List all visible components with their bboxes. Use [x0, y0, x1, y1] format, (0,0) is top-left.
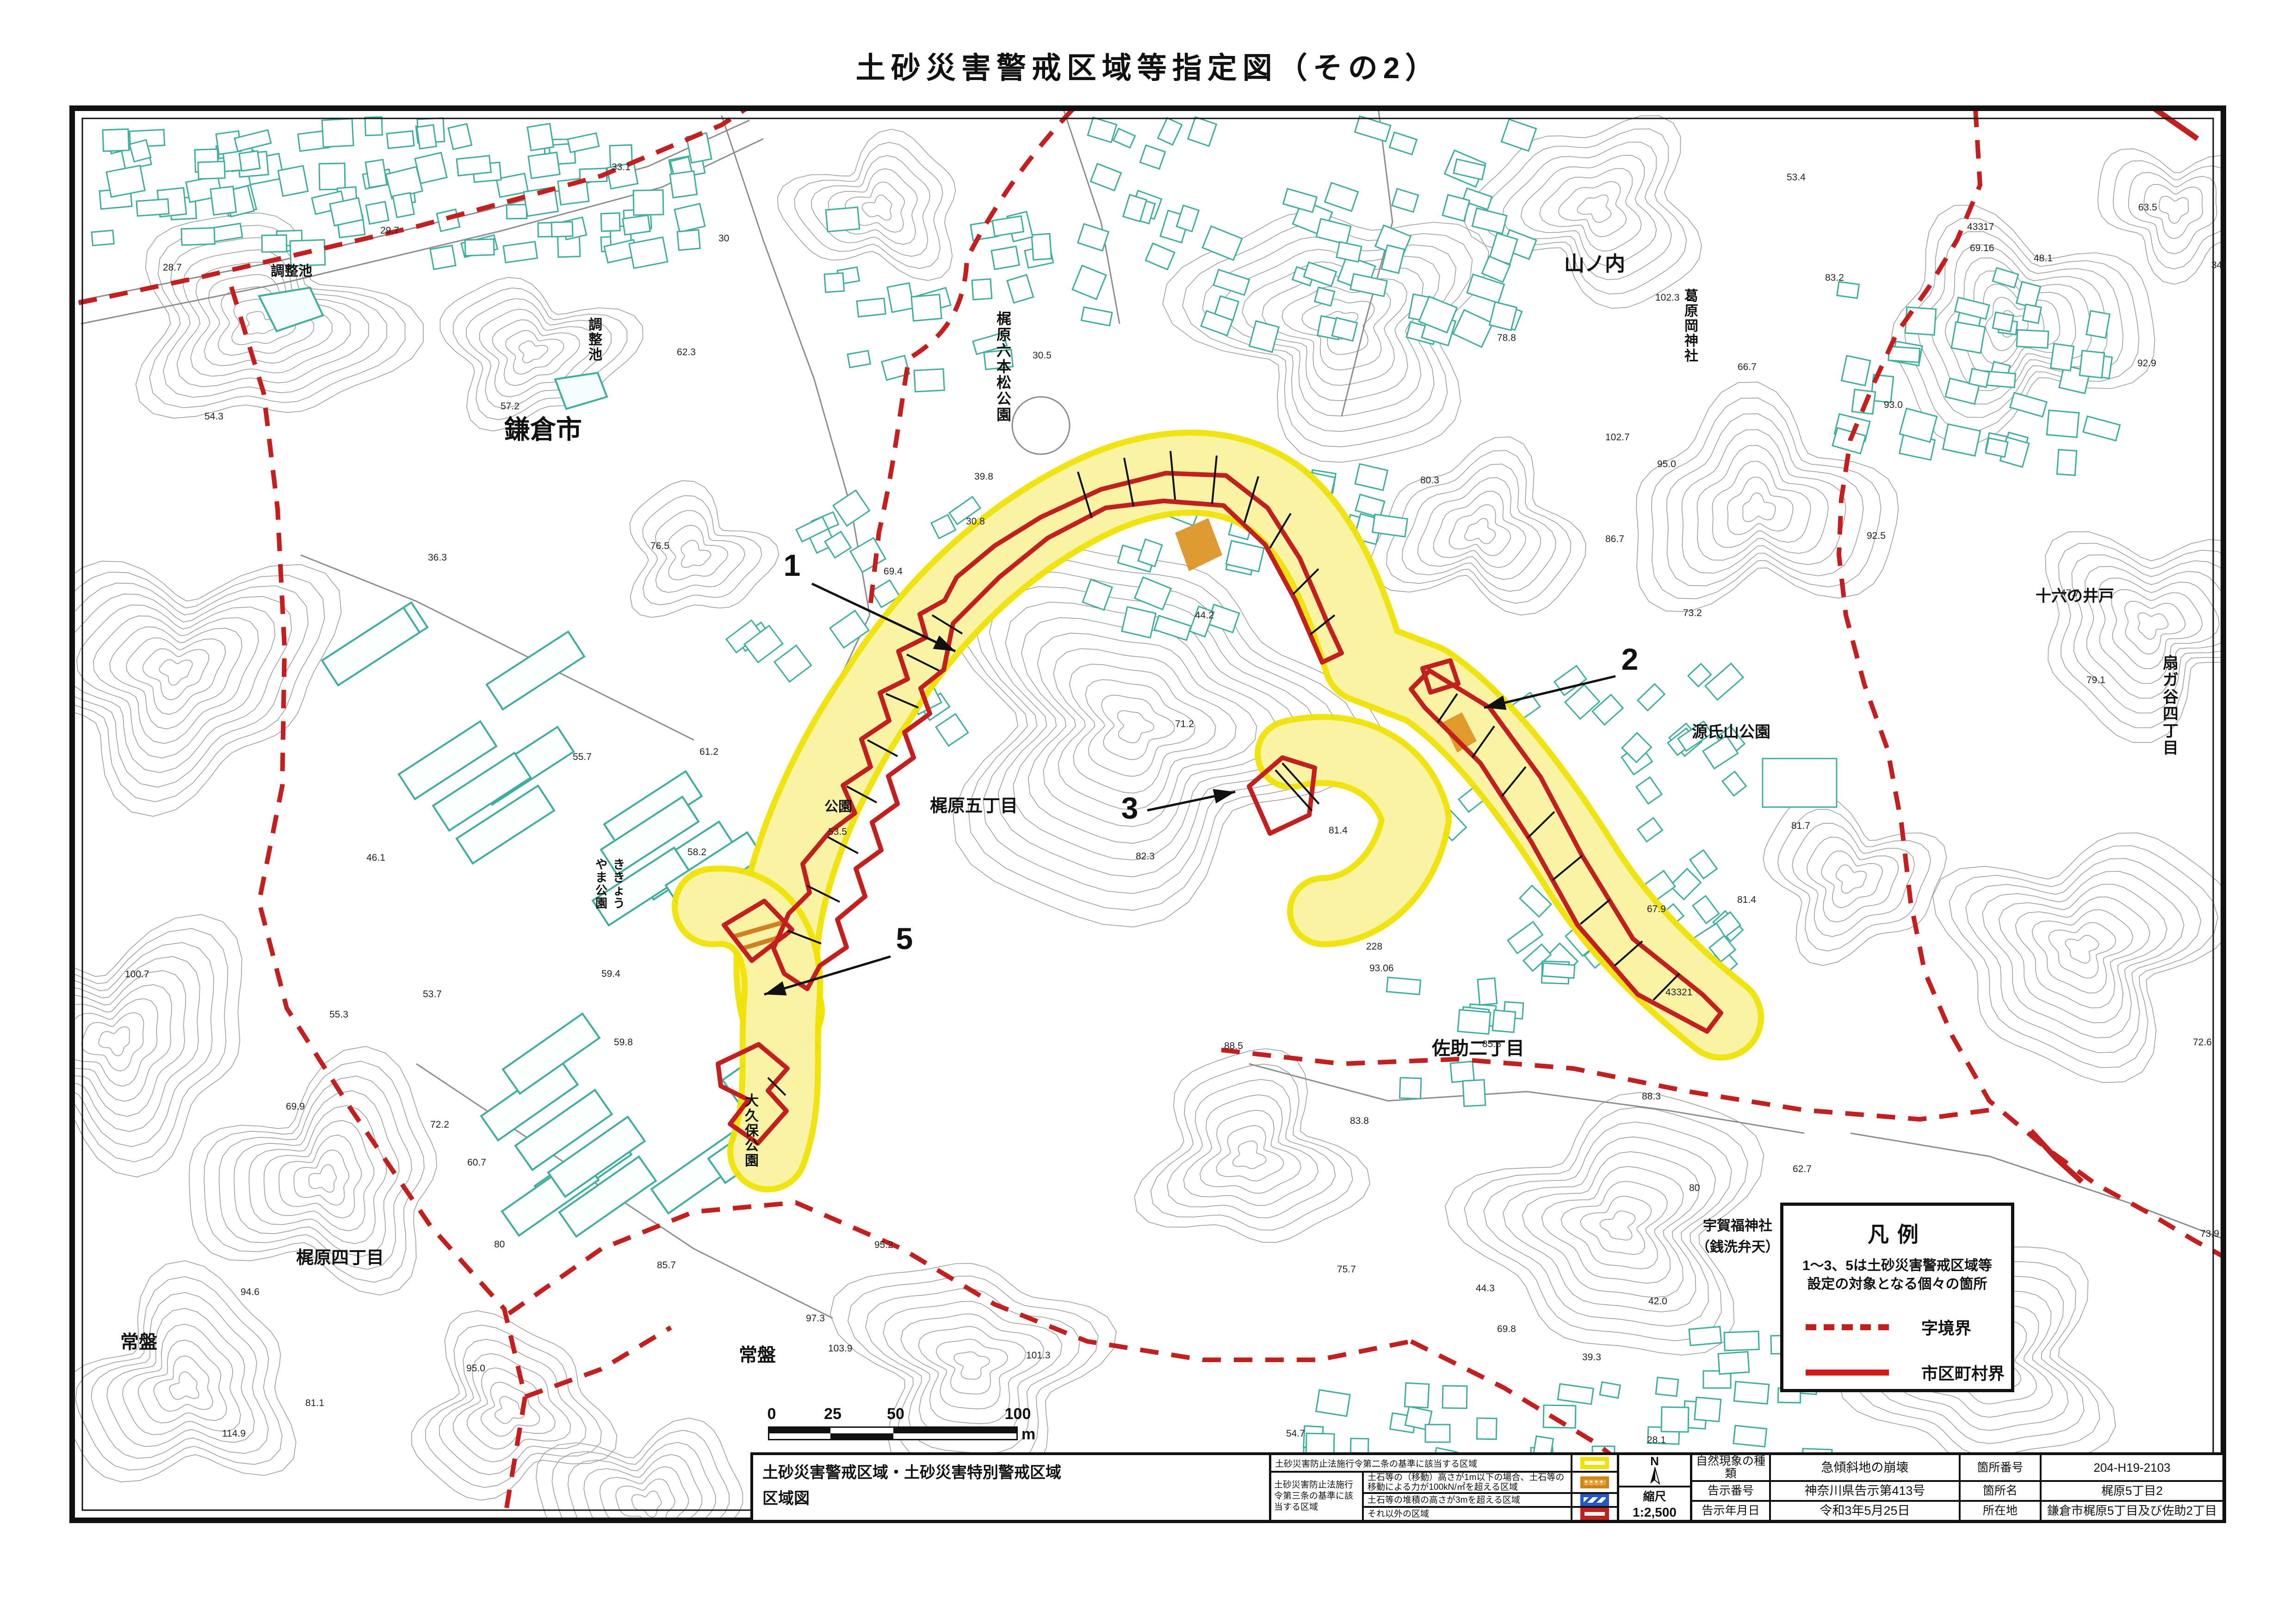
criteria-row-deposit-height: 土石等の堆積の高さが3mを超える区域: [1364, 1494, 1617, 1508]
elevation-label: 72.6: [2193, 1037, 2212, 1048]
place-label: 岡: [1684, 319, 1698, 334]
place-label: 扇: [2163, 654, 2178, 672]
elevation-label: 85.8: [1482, 1039, 1501, 1049]
elevation-label: 69.9: [286, 1101, 305, 1112]
orange-dotted-zone-swatch-icon: [1580, 1476, 1609, 1488]
place-label: 原: [1684, 303, 1698, 319]
place-label: や: [595, 858, 607, 871]
place-label: 源氏山公園: [1692, 723, 1770, 741]
place-label: 松: [996, 374, 1011, 391]
elevation-label: 30.5: [1033, 350, 1052, 361]
elevation-label: 95.0: [466, 1363, 485, 1374]
elevation-label: 36.3: [428, 552, 447, 563]
elevation-label: 228: [1366, 941, 1382, 952]
place-label: 公: [595, 883, 607, 897]
attr-value: 神奈川県告示第413号: [1771, 1482, 1961, 1500]
place-label: 四: [2163, 705, 2178, 723]
elevation-label: 54.3: [204, 411, 223, 422]
place-label: 園: [996, 406, 1011, 423]
attr-value: 急傾斜地の崩壊: [1771, 1455, 1961, 1480]
elevation-label: 100.7: [125, 969, 149, 980]
legend-item-aza-boundary: 字境界: [1806, 1315, 2011, 1339]
scale-tick-0: 0: [767, 1405, 776, 1423]
elevation-label: 76.5: [650, 541, 669, 551]
elevation-label: 47.7: [2061, 588, 2079, 599]
legend-item-label: 字境界: [1921, 1315, 1971, 1339]
red-outline-zone-swatch-icon: [1580, 1508, 1609, 1520]
elevation-label: 53.5: [828, 827, 847, 837]
yellow-zone-swatch-icon: [1580, 1457, 1609, 1469]
criteria-label: それ以外の区域: [1364, 1508, 1571, 1520]
elevation-label: 71.2: [1175, 719, 1194, 729]
attr-label: 箇所番号: [1961, 1455, 2042, 1480]
elevation-label: 79.1: [2086, 675, 2105, 685]
elevation-label: 95.0: [1657, 459, 1676, 469]
red-dashed-line-icon: [1806, 1324, 1889, 1330]
elevation-label: 101.3: [1026, 1350, 1051, 1361]
attributes-section: 自然現象の種類 急傾斜地の崩壊 箇所番号 204-H19-2103 告示番号 神…: [1692, 1455, 2222, 1520]
place-label: 池: [588, 347, 602, 363]
criteria-group-label: 土砂災害防止法施行令第三条の基準に該当する区域: [1271, 1473, 1364, 1520]
elevation-label: 28.1: [1647, 1435, 1666, 1445]
elevation-label: 85.7: [657, 1260, 676, 1271]
place-label: 鎌倉市: [504, 415, 582, 444]
elevation-label: 93.06: [1369, 963, 1394, 974]
elevation-label: 43317: [1967, 222, 1994, 232]
elevation-label: 59.4: [601, 969, 620, 979]
scale-cell: 縮尺 1:2,500: [1619, 1487, 1690, 1520]
place-label: 本: [996, 358, 1011, 375]
place-label: ガ: [2163, 672, 2178, 689]
elevation-label: 58.2: [687, 847, 706, 858]
elevation-label: 103.9: [828, 1343, 853, 1354]
elevation-label: 59.8: [614, 1037, 633, 1048]
elevation-label: 83.2: [1825, 272, 1844, 283]
scale-word: 縮尺: [1643, 1487, 1666, 1504]
place-label: 園: [595, 896, 607, 910]
elevation-label: 69.8: [1497, 1324, 1516, 1334]
criteria-section: 土砂災害防止法施行令第二条の基準に該当する区域 土砂災害防止法施行令第三条の基準…: [1271, 1455, 1619, 1520]
elevation-label: 66.7: [1738, 362, 1757, 372]
elevation-label: 81.4: [1737, 895, 1756, 905]
elevation-label: 29.7: [380, 225, 399, 236]
compass-cell: N: [1619, 1455, 1690, 1487]
place-label: 公園: [824, 799, 852, 815]
map-sheet-title-line2: 区域図: [762, 1486, 1260, 1512]
place-label: ま: [595, 870, 607, 884]
elevation-label: 42.0: [1648, 1296, 1667, 1307]
scale-bar-graphic: [768, 1426, 1018, 1440]
place-label: 梶原五丁目: [930, 796, 1018, 816]
place-label: 保: [745, 1123, 759, 1139]
elevation-label: 54.7: [1286, 1428, 1305, 1439]
place-label: 宇賀福神社: [1703, 1218, 1772, 1234]
elevation-label: 102.7: [1605, 432, 1630, 443]
elevation-label: 95.2: [874, 1240, 893, 1250]
elevation-label: 81.7: [1791, 821, 1810, 831]
elevation-label: 80: [494, 1239, 505, 1250]
elevation-label: 83.8: [1350, 1116, 1369, 1126]
elevation-label: 69.4: [884, 566, 903, 577]
place-label: 丁: [2163, 722, 2178, 740]
elevation-label: 63.5: [2138, 202, 2157, 213]
place-label: 原: [996, 327, 1011, 343]
attr-label: 告示年月日: [1692, 1502, 1771, 1520]
place-label: 調整池: [271, 264, 312, 279]
scale-tick-25: 25: [824, 1405, 842, 1423]
scale-value: 1:2,500: [1633, 1505, 1677, 1520]
swatch-cell: [1571, 1473, 1617, 1492]
place-label: き: [613, 858, 625, 871]
place-label: 山ノ内: [1564, 253, 1625, 275]
legend-note-line1: 1～3、5は土砂災害警戒区域等: [1783, 1257, 2011, 1275]
elevation-label: 48.1: [2034, 253, 2053, 264]
elevation-label: 88.3: [1642, 1091, 1661, 1102]
elevation-label: 78.8: [1497, 333, 1516, 343]
elevation-label: 102.3: [1655, 292, 1680, 303]
elevation-label: 44.3: [1476, 1283, 1495, 1294]
elevation-label: 62.3: [677, 347, 696, 358]
elevation-label: 39.8: [974, 471, 993, 482]
place-label: 大: [745, 1093, 759, 1109]
legend-note-line2: 設定の対象となる個々の箇所: [1783, 1275, 2011, 1294]
elevation-label: 30: [718, 233, 729, 244]
elevation-label: 94.6: [241, 1287, 260, 1297]
elevation-label: 82.3: [1136, 851, 1155, 862]
elevation-label: 80: [1689, 1183, 1700, 1193]
zone-number-label: 2: [1621, 642, 1639, 676]
attr-row-notice-date: 告示年月日 令和3年5月25日 所在地 鎌倉市梶原5丁目及び佐助2丁目: [1692, 1502, 2222, 1520]
criteria-label: 土砂災害防止法施行令第二条の基準に該当する区域: [1271, 1455, 1571, 1471]
place-label: き: [613, 870, 625, 884]
elevation-label: 53.7: [423, 989, 442, 1000]
attr-value: 204-H19-2103: [2042, 1455, 2222, 1480]
elevation-label: 86.7: [1605, 534, 1624, 544]
place-label: 常盤: [739, 1345, 776, 1365]
legend-title: 凡例: [1783, 1218, 2011, 1248]
attr-row-phenomenon: 自然現象の種類 急傾斜地の崩壊 箇所番号 204-H19-2103: [1692, 1455, 2222, 1482]
place-label: 公: [745, 1138, 759, 1154]
elevation-label: 55.7: [573, 752, 592, 762]
elevation-label: 75.7: [1337, 1264, 1356, 1275]
swatch-cell: [1571, 1508, 1617, 1520]
place-label: ょ: [613, 883, 625, 897]
elevation-label: 62.7: [1793, 1164, 1812, 1174]
red-solid-line-icon: [1806, 1370, 1889, 1376]
place-label: 社: [1684, 349, 1698, 364]
attr-value: 令和3年5月25日: [1771, 1502, 1961, 1520]
place-label: 常盤: [120, 1332, 157, 1352]
swatch-cell: [1571, 1455, 1617, 1471]
elevation-label: 93.0: [1884, 400, 1903, 410]
place-label: 梶: [996, 310, 1011, 327]
attr-label: 箇所名: [1961, 1482, 2042, 1500]
elevation-label: 92.5: [1867, 531, 1886, 541]
elevation-label: 46.1: [366, 852, 385, 863]
elevation-label: 80.3: [1420, 475, 1439, 486]
place-label: 六: [996, 342, 1011, 359]
elevation-label: 60.7: [467, 1157, 486, 1168]
elevation-label: 39.3: [1582, 1352, 1601, 1363]
legend-item-label: 市区町村界: [1921, 1360, 2005, 1384]
elevation-label: 81.4: [1329, 825, 1348, 836]
attr-value: 梶原5丁目2: [2042, 1482, 2222, 1500]
legend-note: 1～3、5は土砂災害警戒区域等 設定の対象となる個々の箇所: [1783, 1257, 2011, 1294]
criteria-row-article2: 土砂災害防止法施行令第二条の基準に該当する区域: [1271, 1455, 1617, 1473]
place-label: 調: [588, 317, 602, 333]
attr-label: 告示番号: [1692, 1482, 1771, 1500]
place-label: 目: [2163, 740, 2178, 757]
criteria-row-move-height: 土石等の（移動）高さが1m以下の場合、土石等の移動による力が100kN/㎡を超え…: [1364, 1473, 1617, 1494]
elevation-label: 73.9: [2200, 1228, 2219, 1239]
north-label: N: [1650, 1456, 1659, 1466]
map-sheet-title-line1: 土砂災害警戒区域・土砂災害特別警戒区域: [762, 1460, 1260, 1486]
elevation-label: 30.8: [966, 516, 985, 527]
place-label: 谷: [2163, 688, 2178, 706]
place-label: 梶原四丁目: [296, 1248, 384, 1268]
elevation-label: 34.8: [2211, 260, 2226, 271]
elevation-label: 55.3: [329, 1009, 348, 1020]
legend-item-municipal-boundary: 市区町村界: [1806, 1360, 2011, 1384]
elevation-label: 72.2: [430, 1119, 449, 1130]
attr-value: 鎌倉市梶原5丁目及び佐助2丁目: [2042, 1502, 2222, 1520]
zone-number-label: 3: [1121, 791, 1139, 825]
elevation-label: 92.9: [2137, 358, 2156, 369]
scale-bar: 0 25 50 100 m: [768, 1405, 1064, 1447]
elevation-label: 33.1: [612, 162, 631, 173]
elevation-label: 67.9: [1647, 904, 1666, 914]
info-table: 土砂災害警戒区域・土砂災害特別警戒区域 区域図 土砂災害防止法施行令第二条の基準…: [750, 1452, 2225, 1523]
scale-tick-100: 100: [1005, 1405, 1031, 1423]
place-label: （銭洗弁天）: [1696, 1239, 1779, 1255]
page-title: 土砂災害警戒区域等指定図（その2）: [0, 44, 2296, 87]
place-label: 公: [996, 390, 1011, 407]
attr-label: 自然現象の種類: [1692, 1455, 1771, 1480]
zone-number-label: 5: [896, 921, 913, 956]
zone-number-label: 1: [784, 548, 801, 582]
hazard-map-document: 土砂災害警戒区域等指定図（その2） 1235調整池調整池鎌倉市梶原六本松公園山ノ…: [0, 0, 2296, 1623]
place-label: 神: [1684, 333, 1698, 349]
scale-tick-50: 50: [887, 1405, 904, 1423]
blue-hatched-zone-swatch-icon: [1580, 1494, 1609, 1506]
swatch-cell: [1571, 1494, 1617, 1506]
elevation-label: 73.2: [1683, 608, 1702, 618]
legend-box: 凡例 1～3、5は土砂災害警戒区域等 設定の対象となる個々の箇所 字境界 市区町…: [1780, 1203, 2014, 1392]
compass-scale-section: N 縮尺 1:2,500: [1619, 1455, 1692, 1520]
criteria-label: 土石等の（移動）高さが1m以下の場合、土石等の移動による力が100kN/㎡を超え…: [1364, 1473, 1571, 1492]
elevation-label: 44.2: [1195, 610, 1214, 621]
place-label: う: [613, 896, 625, 910]
elevation-label: 57.2: [501, 401, 520, 412]
elevation-label: 28.7: [163, 262, 182, 273]
criteria-label: 土石等の堆積の高さが3mを超える区域: [1364, 1494, 1571, 1506]
elevation-label: 69.16: [1970, 243, 1994, 253]
elevation-label: 88.5: [1224, 1041, 1243, 1051]
north-arrow-icon: [1645, 1466, 1665, 1485]
elevation-label: 61.2: [699, 747, 718, 757]
elevation-label: 53.4: [1787, 172, 1806, 183]
attr-row-notice-number: 告示番号 神奈川県告示第413号 箇所名 梶原5丁目2: [1692, 1482, 2222, 1502]
place-label: 園: [745, 1154, 759, 1169]
elevation-label: 81.1: [305, 1398, 324, 1408]
place-label: 整: [588, 332, 602, 347]
attr-label: 所在地: [1961, 1502, 2042, 1520]
scale-unit-label: m: [1021, 1426, 1035, 1444]
place-label: 葛: [1684, 289, 1698, 304]
criteria-row-other: それ以外の区域: [1364, 1508, 1617, 1520]
elevation-label: 97.3: [806, 1313, 825, 1324]
map-sheet-title-cell: 土砂災害警戒区域・土砂災害特別警戒区域 区域図: [753, 1455, 1271, 1520]
place-label: 久: [745, 1108, 759, 1123]
elevation-label: 43321: [1665, 987, 1692, 998]
place-label: 佐助二丁目: [1431, 1038, 1524, 1059]
elevation-label: 114.9: [222, 1428, 246, 1439]
